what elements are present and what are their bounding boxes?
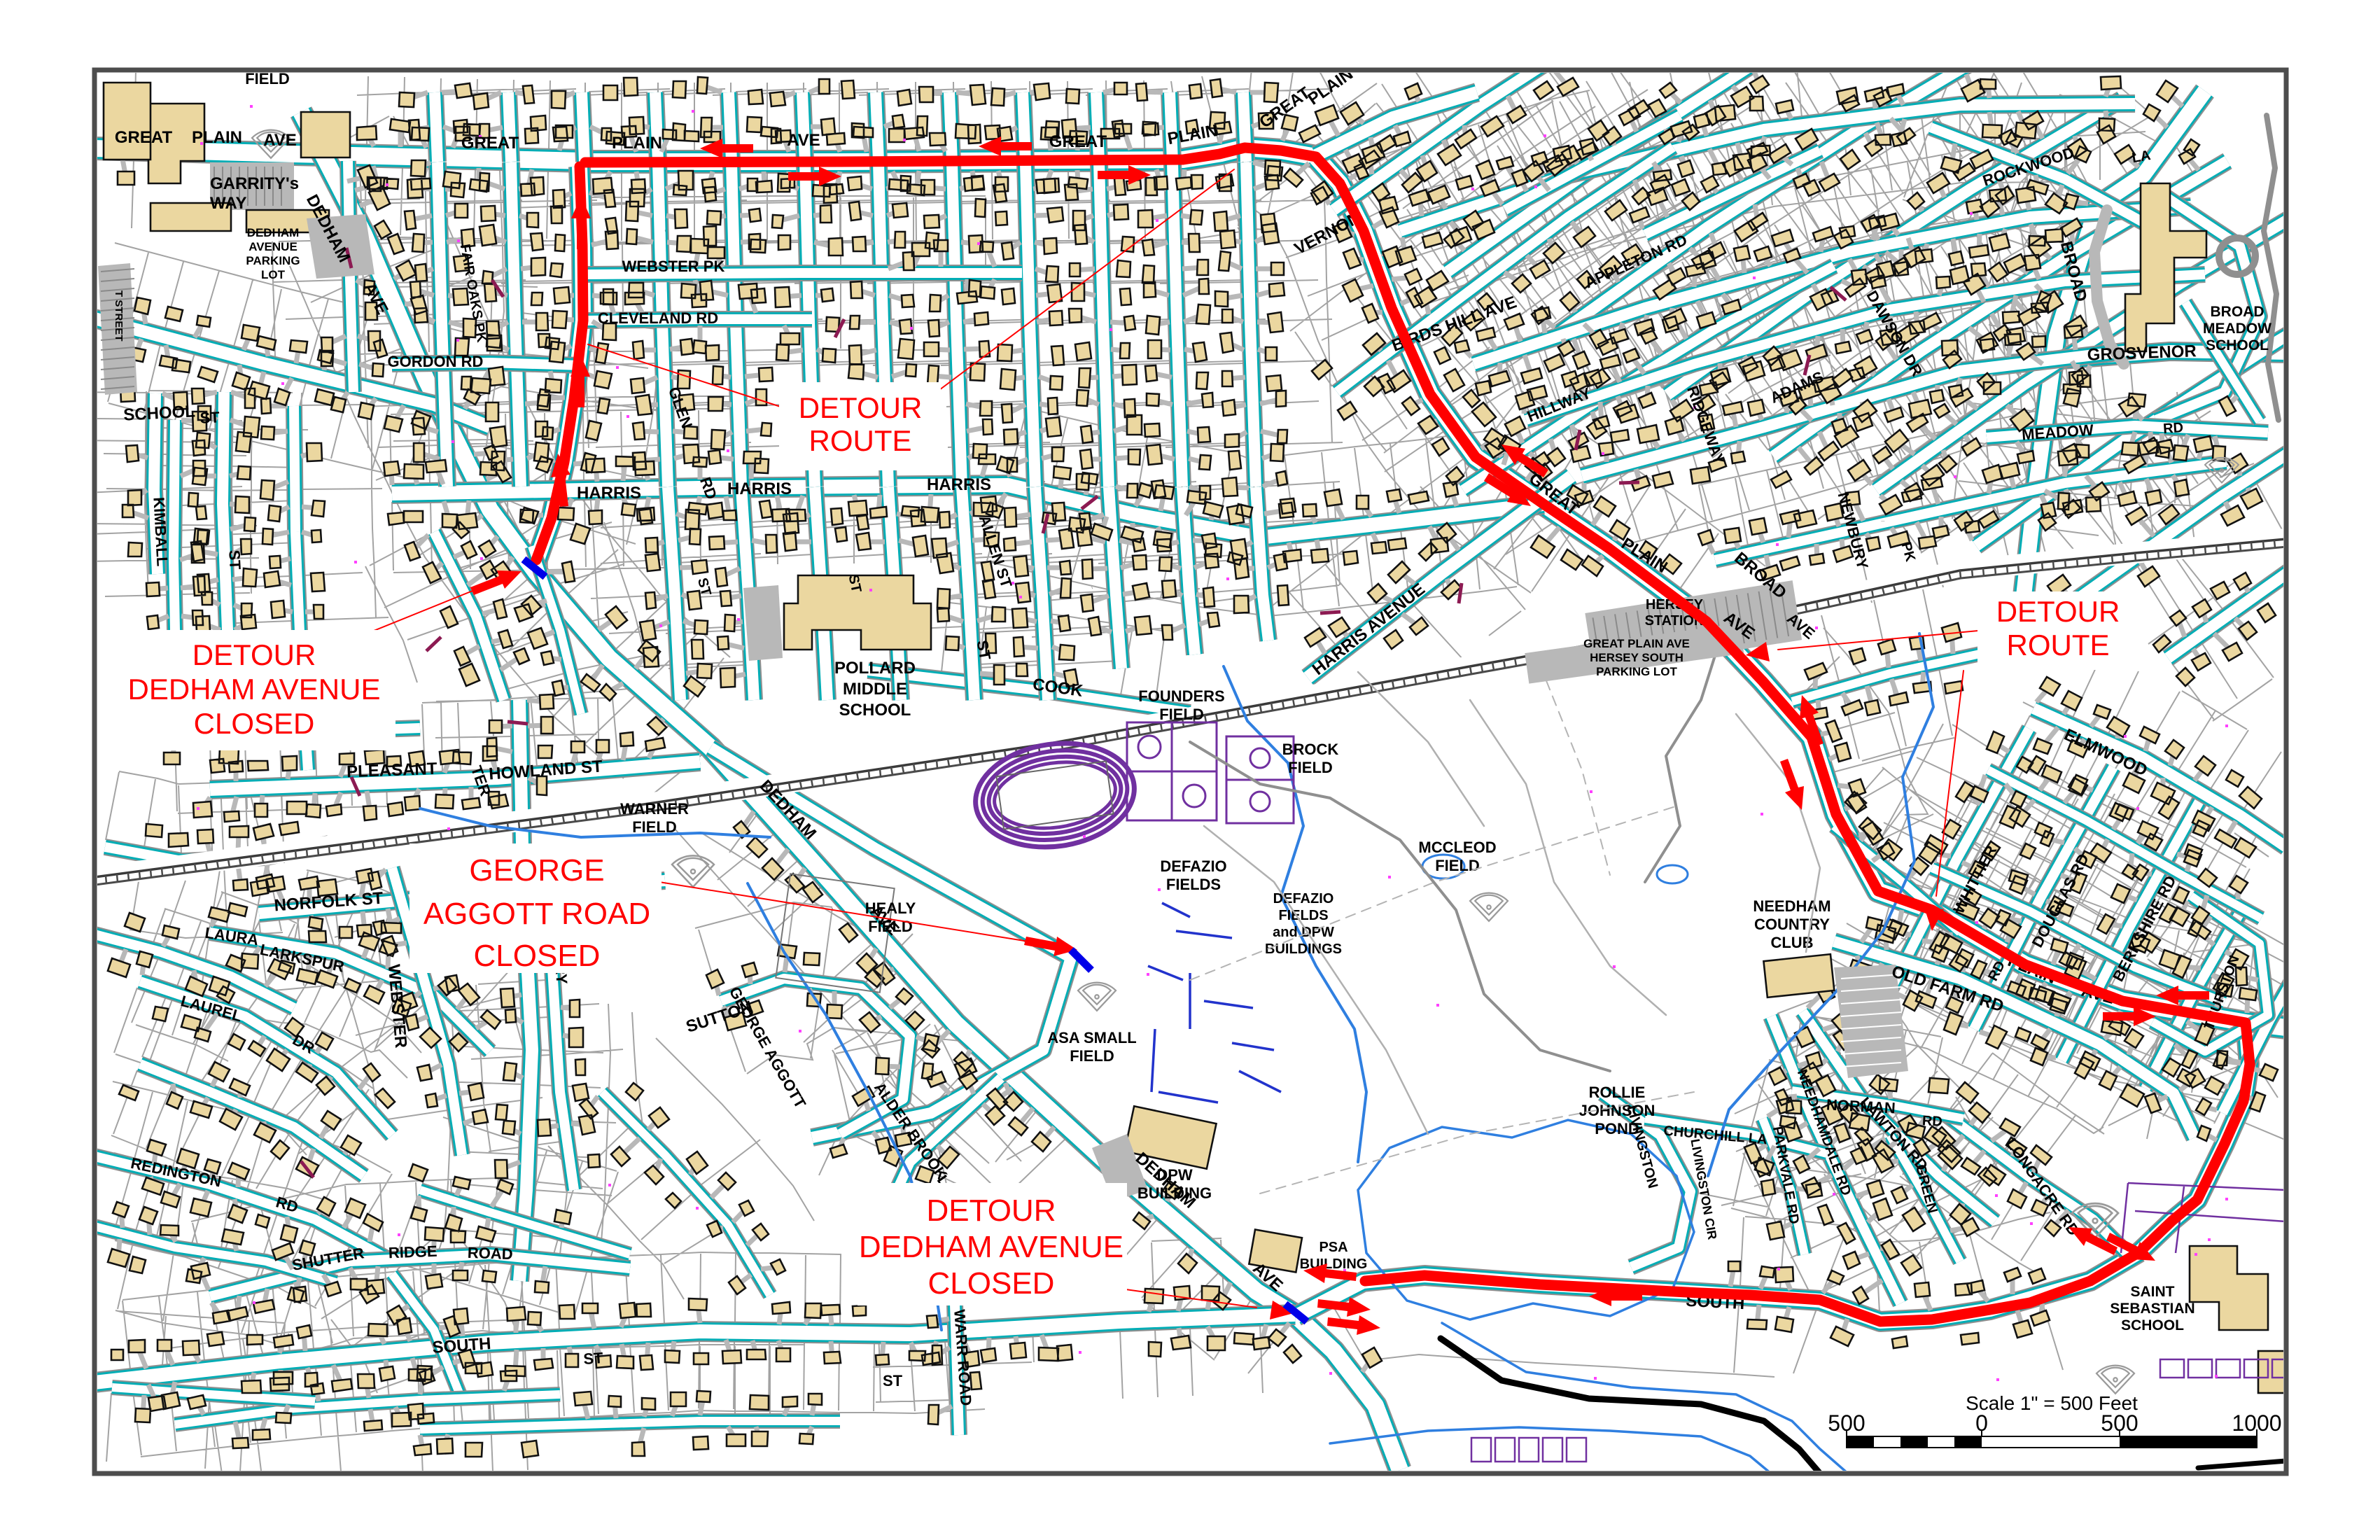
svg-text:GROSVENOR: GROSVENOR xyxy=(2087,342,2197,364)
svg-text:WARNER: WARNER xyxy=(620,800,689,818)
svg-text:HARRIS: HARRIS xyxy=(577,484,641,503)
svg-text:GEORGE: GEORGE xyxy=(469,853,604,888)
svg-text:KIMBALL: KIMBALL xyxy=(150,497,171,567)
svg-text:FIELD: FIELD xyxy=(632,818,677,836)
svg-text:DETOUR: DETOUR xyxy=(927,1193,1056,1228)
svg-text:ROUTE: ROUTE xyxy=(2007,629,2110,661)
svg-text:LA: LA xyxy=(2131,148,2152,166)
svg-text:SCHOOL: SCHOOL xyxy=(2121,1317,2184,1333)
svg-text:HARRIS: HARRIS xyxy=(927,475,991,494)
svg-text:ST: ST xyxy=(583,1349,604,1368)
svg-text:DEDHAM AVENUE: DEDHAM AVENUE xyxy=(859,1230,1123,1264)
svg-text:COUNTRY: COUNTRY xyxy=(1754,916,1830,933)
svg-text:SEBASTIAN: SEBASTIAN xyxy=(2110,1301,2194,1317)
svg-text:ST: ST xyxy=(883,1372,903,1389)
svg-text:PARKING LOT: PARKING LOT xyxy=(1596,665,1677,678)
svg-text:CLOSED: CLOSED xyxy=(928,1266,1055,1301)
svg-text:500: 500 xyxy=(1828,1410,1865,1436)
svg-text:HARRIS: HARRIS xyxy=(727,479,792,498)
svg-text:POLLARD: POLLARD xyxy=(834,659,916,678)
svg-text:GREAT: GREAT xyxy=(461,134,519,153)
svg-text:CLOSED: CLOSED xyxy=(194,707,315,740)
svg-text:GREAT PLAIN AVE: GREAT PLAIN AVE xyxy=(1583,637,1690,650)
svg-text:0: 0 xyxy=(1975,1410,1988,1436)
svg-text:AGGOTT ROAD: AGGOTT ROAD xyxy=(423,897,650,931)
svg-text:PLEASANT: PLEASANT xyxy=(346,759,438,782)
svg-text:T STREET: T STREET xyxy=(113,290,125,342)
svg-text:CLEVELAND RD: CLEVELAND RD xyxy=(598,309,718,327)
svg-text:PLAIN: PLAIN xyxy=(192,128,242,147)
svg-text:ST: ST xyxy=(974,639,995,662)
svg-text:HERSEY SOUTH: HERSEY SOUTH xyxy=(1590,651,1683,664)
svg-text:RD: RD xyxy=(1921,1113,1942,1129)
svg-text:500: 500 xyxy=(2101,1410,2138,1436)
svg-text:SAINT: SAINT xyxy=(2131,1284,2175,1300)
svg-text:BROCK: BROCK xyxy=(1282,741,1339,758)
svg-text:FOUNDERS: FOUNDERS xyxy=(1138,687,1224,705)
svg-text:MCCLEOD: MCCLEOD xyxy=(1418,839,1496,856)
svg-text:PLAIN: PLAIN xyxy=(612,134,662,153)
svg-text:FIELDS: FIELDS xyxy=(1166,876,1221,893)
svg-text:DEDHAM AVENUE: DEDHAM AVENUE xyxy=(128,673,381,706)
svg-text:SCHOOL: SCHOOL xyxy=(839,701,911,720)
svg-text:ROAD: ROAD xyxy=(467,1244,513,1263)
svg-text:SCHOOL: SCHOOL xyxy=(123,402,196,424)
svg-text:1000: 1000 xyxy=(2232,1410,2281,1436)
svg-text:WEBSTER PK: WEBSTER PK xyxy=(622,258,725,275)
svg-text:FIELD: FIELD xyxy=(1070,1047,1114,1065)
svg-text:GORDON RD: GORDON RD xyxy=(388,353,484,370)
svg-text:DETOUR: DETOUR xyxy=(799,391,923,424)
svg-text:FIELD: FIELD xyxy=(1288,759,1333,776)
svg-text:DETOUR: DETOUR xyxy=(1996,595,2120,628)
svg-text:AVE: AVE xyxy=(787,131,820,150)
svg-text:JOHNSON: JOHNSON xyxy=(1579,1102,1655,1119)
svg-text:CLOSED: CLOSED xyxy=(474,939,601,973)
svg-text:BUILDINGS: BUILDINGS xyxy=(1265,941,1342,957)
svg-text:ST: ST xyxy=(225,549,244,570)
svg-text:ST: ST xyxy=(199,408,220,426)
svg-text:ASA SMALL: ASA SMALL xyxy=(1047,1029,1137,1046)
svg-text:AVENUE: AVENUE xyxy=(248,240,297,253)
svg-text:DETOUR: DETOUR xyxy=(192,638,316,671)
svg-text:SCHOOL: SCHOOL xyxy=(2206,337,2269,353)
svg-text:DEFAZIO: DEFAZIO xyxy=(1160,857,1226,875)
svg-text:GREAT: GREAT xyxy=(115,128,173,147)
svg-text:FIELD: FIELD xyxy=(1435,857,1480,874)
svg-text:ROUTE: ROUTE xyxy=(809,424,912,457)
svg-text:RD: RD xyxy=(2162,420,2183,437)
svg-text:NEWBURY: NEWBURY xyxy=(1881,521,1884,522)
svg-text:FIELD: FIELD xyxy=(1159,706,1204,723)
svg-text:PSA: PSA xyxy=(1319,1240,1347,1255)
svg-text:PARKING: PARKING xyxy=(246,254,300,267)
svg-text:BROAD: BROAD xyxy=(2211,304,2264,320)
svg-text:LOT: LOT xyxy=(261,268,286,281)
svg-text:MEADOW: MEADOW xyxy=(2203,321,2271,337)
svg-text:FIELDS: FIELDS xyxy=(1278,908,1328,923)
svg-text:DEDHAM: DEDHAM xyxy=(247,226,300,239)
svg-text:GARRITY's: GARRITY's xyxy=(210,174,299,193)
svg-text:AVE: AVE xyxy=(263,131,297,150)
svg-text:WAY: WAY xyxy=(210,194,246,213)
svg-text:NORMAN: NORMAN xyxy=(1826,1095,1896,1116)
svg-text:NEEDHAM: NEEDHAM xyxy=(1753,897,1830,915)
svg-text:ROLLIE: ROLLIE xyxy=(1589,1084,1646,1101)
svg-text:GREAT: GREAT xyxy=(1049,132,1107,151)
svg-text:MIDDLE: MIDDLE xyxy=(843,680,907,699)
svg-text:RIDGE: RIDGE xyxy=(388,1242,437,1261)
